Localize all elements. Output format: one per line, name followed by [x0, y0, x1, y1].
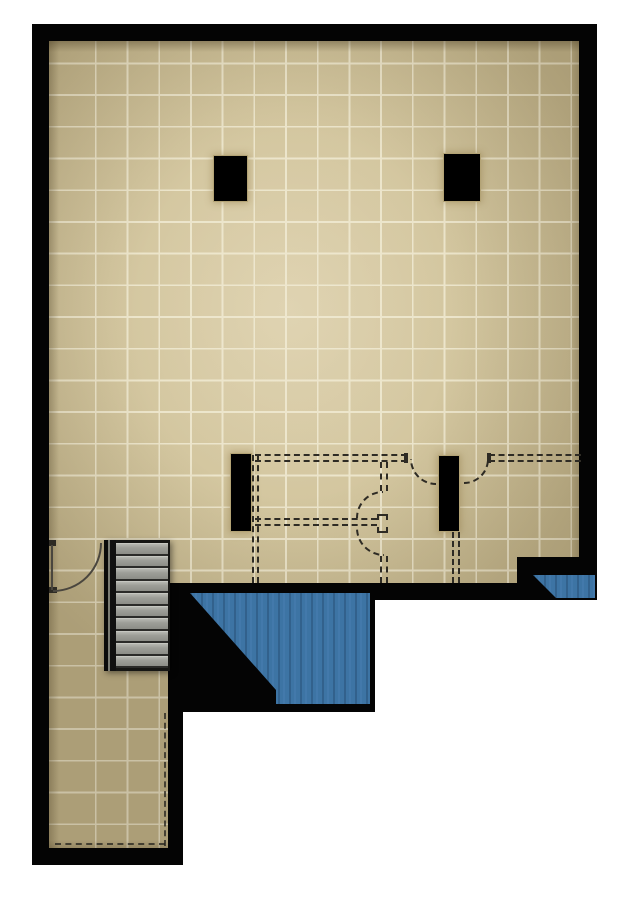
- dashed-wall-left-vert: [252, 455, 259, 583]
- dashed-wall-top-right: [489, 454, 581, 462]
- dashed-wall-center-lower: [380, 556, 388, 583]
- wall-right: [579, 24, 597, 600]
- stair-tread: [116, 631, 168, 644]
- stair-tread: [116, 606, 168, 619]
- floorplan-canvas[interactable]: [0, 0, 630, 900]
- stair-tread: [116, 593, 168, 606]
- stair-tread: [116, 656, 168, 669]
- render-viewport: [0, 0, 630, 900]
- dashed-wall-mid: [255, 518, 377, 526]
- wall-corridor-right: [168, 582, 183, 865]
- floor-tiles: [49, 41, 579, 848]
- dashed-wall-right-vert: [452, 532, 460, 583]
- column-upper-left: [213, 155, 248, 202]
- wall-corridor-bottom: [32, 848, 183, 865]
- door-swing-stair-entry-leaf: [51, 545, 53, 590]
- stair-tread: [116, 568, 168, 581]
- stair-tread: [116, 618, 168, 631]
- stair-tread: [116, 543, 168, 556]
- stair-tread: [116, 643, 168, 656]
- column-lower-left: [230, 453, 252, 532]
- door-jamb-tick-left: [404, 453, 408, 463]
- stair-tread: [116, 556, 168, 569]
- dashed-wall-top-left: [255, 454, 407, 462]
- wall-left: [32, 24, 49, 865]
- corridor-edge-dashes-bottom: [55, 843, 165, 845]
- column-lower-right: [438, 455, 460, 532]
- wall-top: [32, 24, 597, 41]
- staircase-side-rail: [104, 540, 116, 671]
- corridor-edge-dashes-right: [164, 713, 166, 846]
- column-upper-right: [443, 153, 481, 202]
- stair-tread: [116, 581, 168, 594]
- dashed-wall-center-upper: [380, 462, 388, 491]
